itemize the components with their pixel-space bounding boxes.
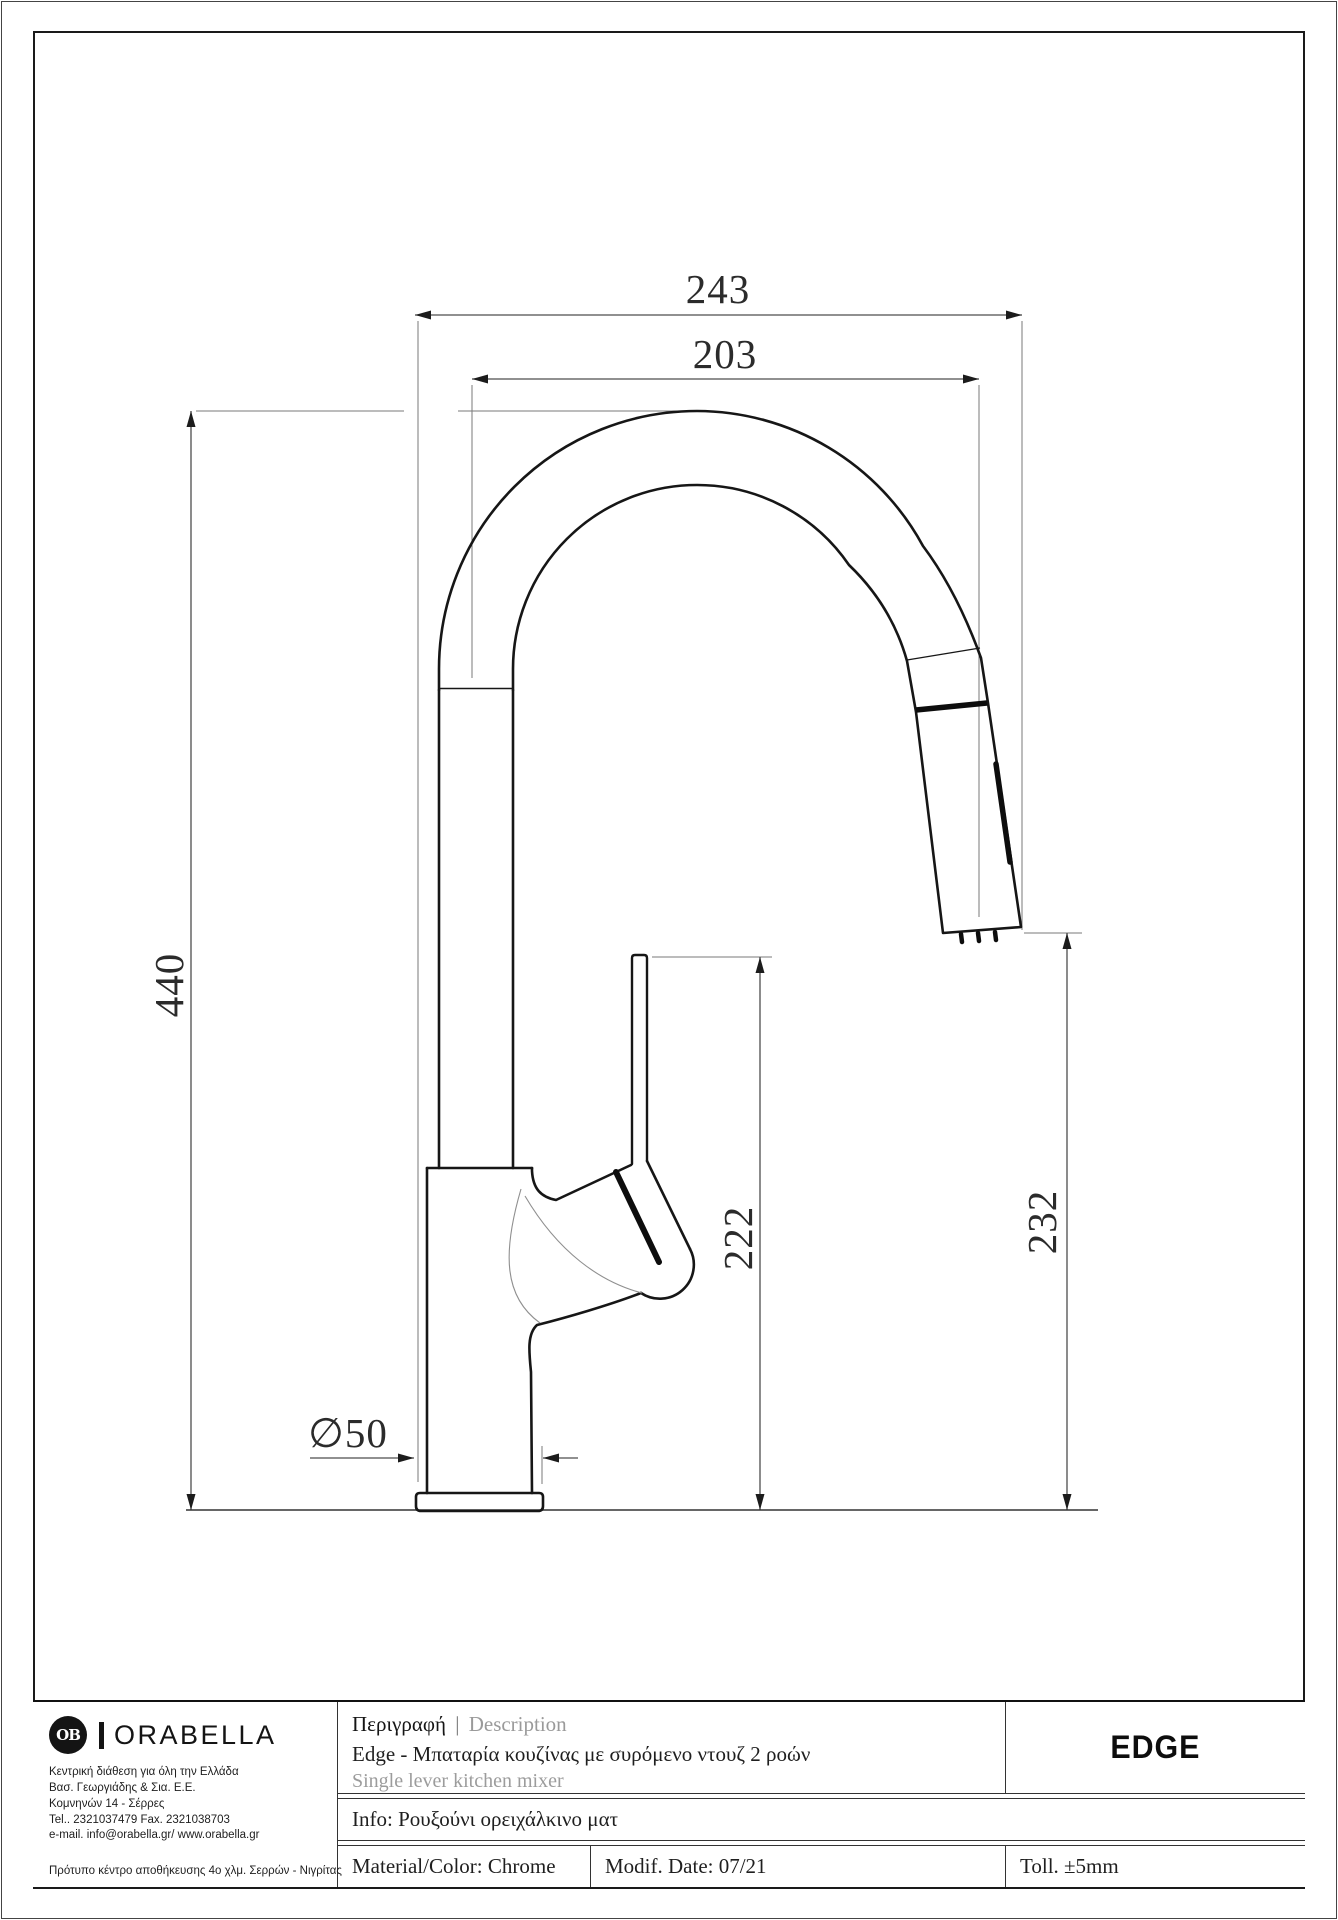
dimension-label-overall-width: 243: [686, 266, 751, 312]
spray-head-toggle-stripe: [996, 764, 1010, 862]
fairing-curves: [509, 1189, 642, 1323]
lever-rod: [632, 955, 647, 1164]
product-code: EDGE: [1111, 1729, 1201, 1766]
dimension-lines: [191, 315, 1067, 1510]
description-header: Περιγραφή | Description: [352, 1712, 1005, 1737]
lever-boss-cap: [641, 1249, 694, 1299]
logo-monogram-icon: OB: [49, 1716, 87, 1754]
base-flange: [416, 1493, 543, 1511]
company-logo: OB ORABELLA: [49, 1714, 327, 1756]
lever-boss-lower-edge: [529, 1293, 641, 1493]
dimension-label-base-diameter: ∅50: [308, 1410, 388, 1456]
title-block-right: Περιγραφή | Description Edge - Μπαταρία …: [338, 1702, 1305, 1887]
description-separator: |: [451, 1712, 463, 1736]
tolerance-text: Toll. ±5mm: [1020, 1854, 1119, 1879]
spout-path: [439, 411, 1021, 933]
material-cell: Material/Color: Chrome: [338, 1846, 590, 1887]
address-line: Κεντρική διάθεση για όλη την Ελλάδα: [49, 1765, 327, 1781]
description-row: Περιγραφή | Description Edge - Μπαταρία …: [338, 1702, 1305, 1793]
faucet-outline: [416, 411, 1021, 1511]
address-line: Βασ. Γεωργιάδης & Σια. Ε.Ε.: [49, 1781, 327, 1797]
material-text: Material/Color: Chrome: [352, 1854, 556, 1879]
product-code-cell: EDGE: [1005, 1702, 1305, 1793]
company-cell: OB ORABELLA Κεντρική διάθεση για όλη την…: [33, 1702, 338, 1887]
dimension-label-spout-reach: 203: [693, 331, 758, 377]
lever-boss-face: [647, 1161, 690, 1249]
title-block: OB ORABELLA Κεντρική διάθεση για όλη την…: [33, 1700, 1305, 1887]
hose-joint-line: [907, 648, 980, 660]
logo-wordmark: ORABELLA: [114, 1720, 277, 1751]
address-line: Tel.. 2321037479 Fax. 2321038703: [49, 1813, 327, 1829]
description-cell: Περιγραφή | Description Edge - Μπαταρία …: [338, 1702, 1005, 1793]
modif-date-text: Modif. Date: 07/21: [605, 1854, 767, 1879]
company-footer-line: Πρότυπο κέντρο αποθήκευσης 4ο χλμ. Σερρώ…: [49, 1865, 327, 1877]
info-row: Info: Ρουξούνι ορειχάλκινο ματ: [338, 1799, 1305, 1840]
description-label-en: Description: [469, 1712, 567, 1736]
address-line: Κομνηνών 14 - Σέρρες: [49, 1797, 327, 1813]
company-address: Κεντρική διάθεση για όλη την Ελλάδα Βασ.…: [49, 1765, 327, 1844]
spray-head-band: [916, 703, 987, 710]
logo-divider-bar: [99, 1722, 104, 1749]
dimension-arrows: [187, 311, 1072, 1511]
lever-band: [616, 1172, 659, 1262]
bottom-row: Material/Color: Chrome Modif. Date: 07/2…: [338, 1846, 1305, 1887]
tolerance-cell: Toll. ±5mm: [1005, 1846, 1305, 1887]
address-line: e-mail. info@orabella.gr/ www.orabella.g…: [49, 1828, 327, 1844]
aerator-nozzles: [961, 932, 996, 942]
dimension-label-spray-head-height: 232: [1019, 1190, 1065, 1255]
info-text: Info: Ρουξούνι ορειχάλκινο ματ: [352, 1807, 618, 1832]
description-text-en: Single lever kitchen mixer: [352, 1770, 1005, 1793]
datasheet-page: 243 203 440 222 232 ∅50 OB ORABELLA Κεντ…: [0, 0, 1338, 1920]
dimension-label-total-height: 440: [146, 953, 192, 1018]
dimension-label-handle-height: 222: [715, 1206, 761, 1271]
description-label-gr: Περιγραφή: [352, 1712, 446, 1736]
faucet-technical-drawing: 243 203 440 222 232 ∅50: [0, 0, 1338, 1920]
modif-date-cell: Modif. Date: 07/21: [590, 1846, 1005, 1887]
description-text-gr: Edge - Μπαταρία κουζίνας με συρόμενο ντο…: [352, 1742, 1005, 1767]
